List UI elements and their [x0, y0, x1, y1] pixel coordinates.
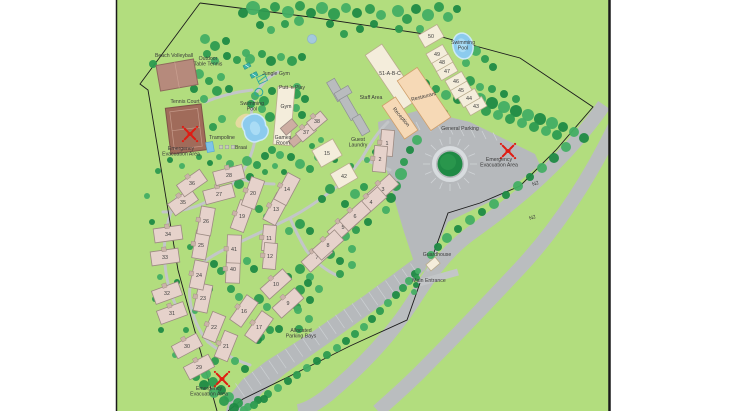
- tree: [217, 73, 225, 81]
- tree: [502, 191, 510, 199]
- tree: [155, 168, 161, 174]
- tree: [256, 21, 264, 29]
- tree: [144, 193, 150, 199]
- tree: [245, 54, 255, 64]
- building-number-40: 40: [230, 267, 236, 273]
- building-number-21: 21: [223, 344, 229, 350]
- tree: [258, 50, 266, 58]
- pond: [308, 35, 317, 44]
- tree: [370, 20, 378, 28]
- tree: [411, 4, 421, 14]
- tree: [392, 291, 400, 299]
- tree: [306, 227, 314, 235]
- tree: [465, 215, 475, 225]
- tree: [235, 293, 243, 301]
- building-number-20: 20: [250, 191, 256, 197]
- label-block-51: 51-A-B-C: [379, 71, 401, 77]
- tree: [462, 59, 470, 67]
- building-number-44: 44: [466, 96, 472, 102]
- building-number-28: 28: [226, 173, 232, 179]
- tree: [400, 158, 408, 166]
- building-number-15: 15: [324, 151, 330, 157]
- tree: [179, 163, 185, 169]
- building-number-17: 17: [256, 325, 262, 331]
- tree: [326, 20, 334, 28]
- tree: [212, 86, 222, 96]
- tree: [303, 364, 311, 372]
- label-tennis-court: Tennis Court: [170, 99, 200, 105]
- label-main-entrance: Main Entrance: [412, 278, 446, 284]
- tree: [157, 274, 163, 280]
- building-number-38: 38: [314, 119, 320, 125]
- tree: [325, 184, 335, 194]
- building-number-26: 26: [203, 219, 209, 225]
- tree: [411, 289, 417, 295]
- label-swimming-pool-left: Pool: [247, 107, 257, 113]
- tree: [489, 199, 499, 209]
- building-number-45: 45: [458, 88, 464, 94]
- label-general-parking: General Parking: [441, 126, 479, 132]
- tree: [453, 5, 461, 13]
- tree: [454, 225, 462, 233]
- label-staff-area: Staff Area: [360, 95, 383, 101]
- tree: [250, 265, 258, 273]
- tree: [422, 9, 434, 21]
- tree: [295, 264, 305, 274]
- label-outdoor-table-tennis: Table Tennis: [194, 62, 223, 68]
- tree: [537, 163, 547, 173]
- tree: [493, 110, 503, 120]
- building-number-10: 10: [273, 282, 279, 288]
- tree: [505, 114, 515, 124]
- tree: [376, 10, 386, 20]
- tree: [301, 95, 309, 103]
- building-number-43: 43: [473, 104, 479, 110]
- tree: [262, 169, 268, 175]
- tree: [243, 257, 251, 265]
- tree: [395, 25, 403, 33]
- tree: [517, 118, 527, 128]
- tree: [541, 126, 551, 136]
- tree: [241, 365, 249, 373]
- label-beach-volleyball: Beach Volleyball: [155, 53, 193, 59]
- tree: [284, 377, 292, 385]
- tree: [225, 85, 233, 93]
- tree: [318, 137, 324, 143]
- label-swimming-pool-right: Pool: [458, 46, 468, 52]
- tree: [258, 8, 270, 20]
- building-number-31: 31: [169, 311, 175, 317]
- building-number-42: 42: [341, 174, 347, 180]
- tree: [529, 122, 539, 132]
- tree: [558, 122, 568, 132]
- tree: [272, 163, 278, 169]
- building-number-13: 13: [273, 207, 279, 213]
- tree: [255, 205, 263, 213]
- building-number-6: 6: [354, 214, 357, 220]
- tree: [276, 151, 284, 159]
- building-number-16: 16: [241, 309, 247, 315]
- tree: [306, 8, 316, 18]
- label-games-room: Room: [276, 141, 290, 147]
- tree: [476, 83, 484, 91]
- building-number-36: 36: [189, 181, 195, 187]
- tree: [569, 127, 579, 137]
- building-number-23: 23: [200, 296, 206, 302]
- label-jungle-gym: Jungle Gym: [262, 71, 290, 77]
- tree: [341, 200, 349, 208]
- building-number-27: 27: [216, 192, 222, 198]
- tree: [341, 3, 351, 13]
- tree: [323, 351, 331, 359]
- building-number-2: 2: [379, 157, 382, 163]
- tree: [549, 153, 559, 163]
- tree: [513, 181, 523, 191]
- tree: [266, 56, 276, 66]
- building-number-35: 35: [180, 200, 186, 206]
- tree: [336, 270, 344, 278]
- building-number-19: 19: [239, 214, 245, 220]
- tree: [579, 133, 589, 143]
- building-number-24: 24: [196, 273, 202, 279]
- tree: [261, 152, 269, 160]
- tree: [183, 327, 189, 333]
- tree: [561, 142, 571, 152]
- tree: [298, 111, 306, 119]
- building-number-30: 30: [184, 344, 190, 350]
- tree: [209, 123, 217, 131]
- building-number-49: 49: [434, 52, 440, 58]
- tree: [268, 87, 276, 95]
- tree: [200, 95, 208, 103]
- tree: [489, 63, 497, 71]
- tree: [376, 307, 384, 315]
- tree: [250, 401, 258, 409]
- tree: [207, 160, 213, 166]
- tree: [364, 157, 370, 163]
- building-number-48: 48: [439, 60, 445, 66]
- building-number-11: 11: [266, 236, 272, 242]
- tree: [352, 8, 362, 18]
- building-number-50: 50: [428, 34, 434, 40]
- tree: [238, 8, 248, 18]
- tree: [309, 143, 315, 149]
- tree: [336, 257, 344, 265]
- tree: [210, 260, 218, 268]
- building-number-29: 29: [196, 365, 202, 371]
- tree: [233, 56, 241, 64]
- tree: [342, 337, 350, 345]
- tree: [295, 219, 305, 229]
- tree: [306, 296, 314, 304]
- tree: [231, 357, 239, 365]
- building-number-37: 37: [303, 130, 309, 136]
- tree: [285, 227, 293, 235]
- tree: [392, 5, 404, 17]
- label-allocated-parking: Parking Bays: [286, 334, 317, 340]
- tree: [260, 395, 268, 403]
- tree: [216, 154, 222, 160]
- tree: [223, 52, 231, 60]
- building-number-8: 8: [327, 243, 330, 249]
- tree: [293, 371, 301, 379]
- building-number-22: 22: [211, 325, 217, 331]
- tree: [356, 25, 364, 33]
- tree: [295, 159, 305, 169]
- building-number-14: 14: [284, 187, 290, 193]
- tree: [275, 325, 283, 333]
- tree: [167, 157, 173, 163]
- tree: [305, 315, 313, 323]
- tree: [295, 1, 305, 11]
- tree: [318, 195, 326, 203]
- label-evac-tennis: Evacuation Area: [162, 152, 200, 158]
- tree: [442, 233, 452, 243]
- label-trampoline: Trampoline: [209, 135, 235, 141]
- tree: [263, 303, 271, 311]
- tree: [340, 30, 348, 38]
- tree: [434, 243, 442, 251]
- label-guest-laundry: Laundry: [349, 143, 368, 149]
- tree: [412, 135, 422, 145]
- tree: [277, 53, 285, 61]
- tree: [441, 90, 451, 100]
- tree: [328, 8, 340, 20]
- braai-icon: [219, 145, 235, 149]
- label-braai: Braai: [235, 145, 247, 151]
- tree: [253, 161, 261, 169]
- tree: [333, 344, 341, 352]
- tree: [488, 85, 496, 93]
- tree: [384, 299, 392, 307]
- tree: [222, 37, 230, 45]
- tree: [481, 55, 489, 63]
- tree: [242, 156, 252, 166]
- tree: [270, 2, 280, 12]
- building-number-9: 9: [287, 301, 290, 307]
- tree: [316, 2, 328, 14]
- tree: [348, 245, 356, 253]
- tree: [406, 146, 414, 154]
- tree: [282, 6, 294, 18]
- tree: [298, 53, 306, 61]
- tree: [443, 12, 453, 22]
- tree: [434, 2, 444, 12]
- label-evac-parking: Evacuation Area: [480, 163, 518, 169]
- tree: [365, 4, 375, 14]
- label-putt-n-play: Putt 'n Play: [279, 85, 305, 91]
- tree: [227, 285, 235, 293]
- tree: [348, 261, 356, 269]
- tree: [500, 90, 508, 98]
- tree: [268, 146, 276, 154]
- tree: [360, 323, 368, 331]
- tree: [402, 14, 412, 24]
- building-number-47: 47: [444, 69, 450, 75]
- tree: [304, 279, 312, 287]
- tree: [350, 189, 360, 199]
- building-number-4: 4: [370, 200, 373, 206]
- tree: [265, 112, 275, 122]
- tree: [313, 357, 321, 365]
- tree: [210, 41, 220, 51]
- building-number-41: 41: [231, 247, 237, 253]
- building-number-34: 34: [165, 232, 171, 238]
- tree: [294, 16, 304, 26]
- tree: [205, 77, 213, 85]
- tree: [287, 153, 295, 161]
- trampoline-icon: [206, 141, 215, 152]
- tree: [416, 25, 424, 33]
- building-number-1: 1: [386, 141, 389, 147]
- tree: [382, 206, 390, 214]
- tree: [246, 1, 260, 15]
- tree: [281, 169, 287, 175]
- tree: [267, 26, 275, 34]
- tree: [360, 183, 368, 191]
- tree: [399, 284, 407, 292]
- tree: [512, 95, 520, 103]
- tree: [368, 315, 376, 323]
- tree: [274, 384, 282, 392]
- tree: [149, 219, 155, 225]
- tree: [478, 208, 486, 216]
- resort-map: 1234567891011121314151617192021222324252…: [0, 0, 730, 411]
- label-gym: Gym: [281, 104, 292, 110]
- tree: [294, 306, 302, 314]
- tree: [415, 268, 421, 274]
- tree: [200, 34, 210, 44]
- tree: [281, 20, 289, 28]
- building-number-12: 12: [267, 254, 273, 260]
- tree: [364, 218, 372, 226]
- building-number-25: 25: [198, 243, 204, 249]
- tree: [218, 115, 226, 123]
- tree: [315, 285, 323, 293]
- building-number-33: 33: [162, 255, 168, 261]
- tree: [526, 173, 534, 181]
- tree: [287, 56, 297, 66]
- label-guardhouse: Guardhouse: [423, 252, 452, 258]
- tree: [351, 330, 359, 338]
- tree: [158, 327, 164, 333]
- tree: [306, 165, 314, 173]
- label-evac-south: Evacuation Area: [190, 392, 228, 398]
- building-number-32: 32: [164, 291, 170, 297]
- building-number-46: 46: [453, 79, 459, 85]
- tree: [395, 168, 407, 180]
- tree: [552, 130, 562, 140]
